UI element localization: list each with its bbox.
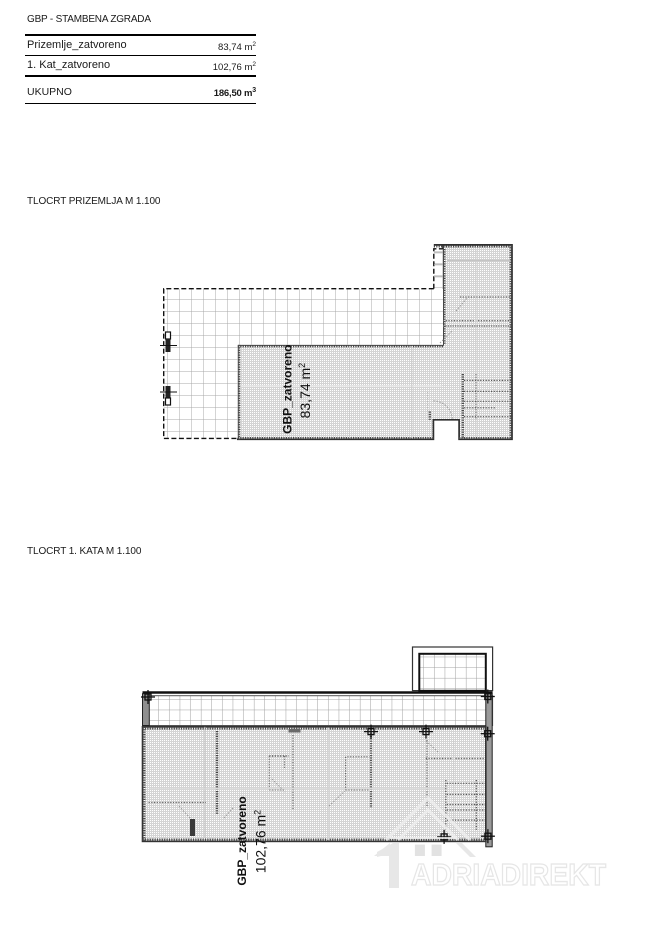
svg-text:ADRIADIREKT: ADRIADIREKT (411, 857, 606, 892)
svg-text:83,74 m2: 83,74 m2 (297, 363, 313, 419)
svg-text:GBP_zatvoreno: GBP_zatvoreno (235, 796, 249, 885)
svg-text:102,76 m2: 102,76 m2 (252, 810, 268, 873)
svg-text:GBP_zatvoreno: GBP_zatvoreno (280, 345, 294, 434)
